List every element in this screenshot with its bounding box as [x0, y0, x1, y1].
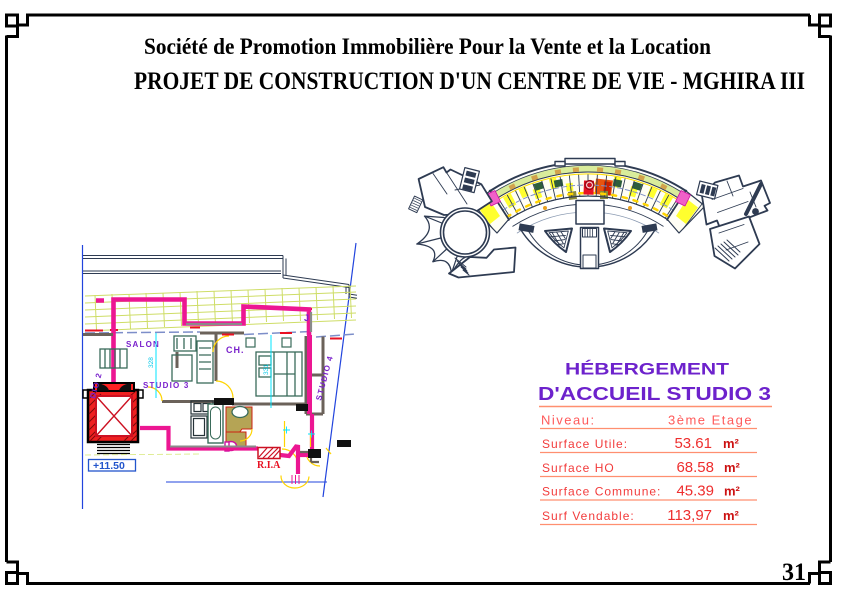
svg-text:3ème Etage: 3ème Etage — [668, 413, 753, 428]
svg-text:Surface Utile:: Surface Utile: — [542, 437, 628, 451]
svg-text:STUDIO 3: STUDIO 3 — [143, 381, 190, 390]
svg-text:HÉBERGEMENT: HÉBERGEMENT — [565, 360, 730, 379]
svg-text:J: J — [304, 313, 309, 323]
svg-text:Surface Commune:: Surface Commune: — [542, 485, 661, 499]
svg-text:CH.: CH. — [226, 345, 245, 355]
svg-text:31: 31 — [782, 559, 806, 586]
svg-text:m²: m² — [723, 436, 740, 451]
svg-text:+11.50: +11.50 — [93, 460, 125, 472]
svg-text:PROJET DE CONSTRUCTION D'UN CE: PROJET DE CONSTRUCTION D'UN CENTRE DE VI… — [134, 68, 805, 95]
svg-text:113,97: 113,97 — [667, 507, 712, 524]
svg-text:m²: m² — [723, 508, 740, 523]
svg-text:Niveau:: Niveau: — [541, 413, 596, 428]
svg-text:m²: m² — [724, 484, 741, 499]
svg-text:Société de Promotion Immobiliè: Société de Promotion Immobilière Pour la… — [144, 34, 711, 59]
svg-text:Surf Vendable:: Surf Vendable: — [542, 509, 635, 523]
svg-text:m²: m² — [724, 460, 741, 475]
svg-text:68.58: 68.58 — [676, 459, 714, 476]
svg-text:SALON: SALON — [126, 340, 160, 349]
svg-text:53.61: 53.61 — [674, 435, 712, 452]
svg-text:45.39: 45.39 — [676, 483, 714, 500]
svg-text:Surface HO: Surface HO — [542, 461, 615, 475]
svg-text:328: 328 — [148, 357, 155, 368]
svg-text:R.I.A: R.I.A — [257, 460, 281, 471]
svg-text:D'ACCUEIL STUDIO 3: D'ACCUEIL STUDIO 3 — [538, 384, 771, 404]
svg-text:331: 331 — [263, 364, 270, 375]
svg-text:STUDIO 4: STUDIO 4 — [314, 354, 335, 401]
